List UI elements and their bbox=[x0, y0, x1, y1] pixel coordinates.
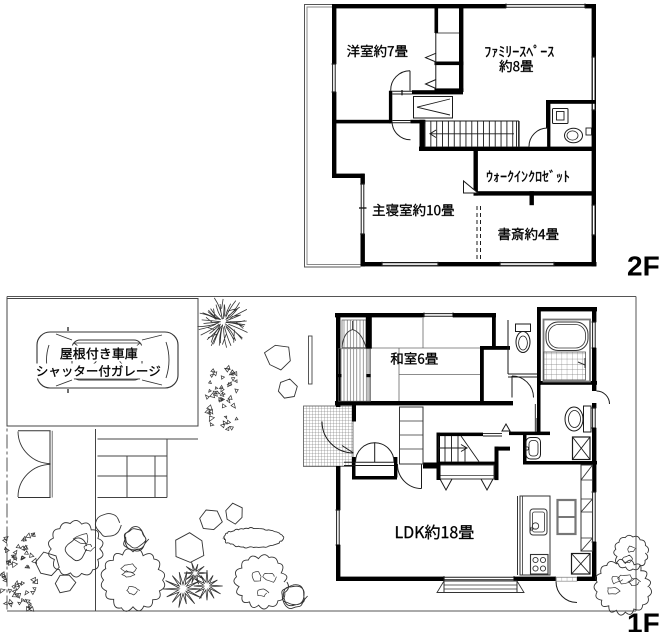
svg-text:1F: 1F bbox=[627, 608, 660, 633]
svg-text:2F: 2F bbox=[627, 251, 660, 282]
